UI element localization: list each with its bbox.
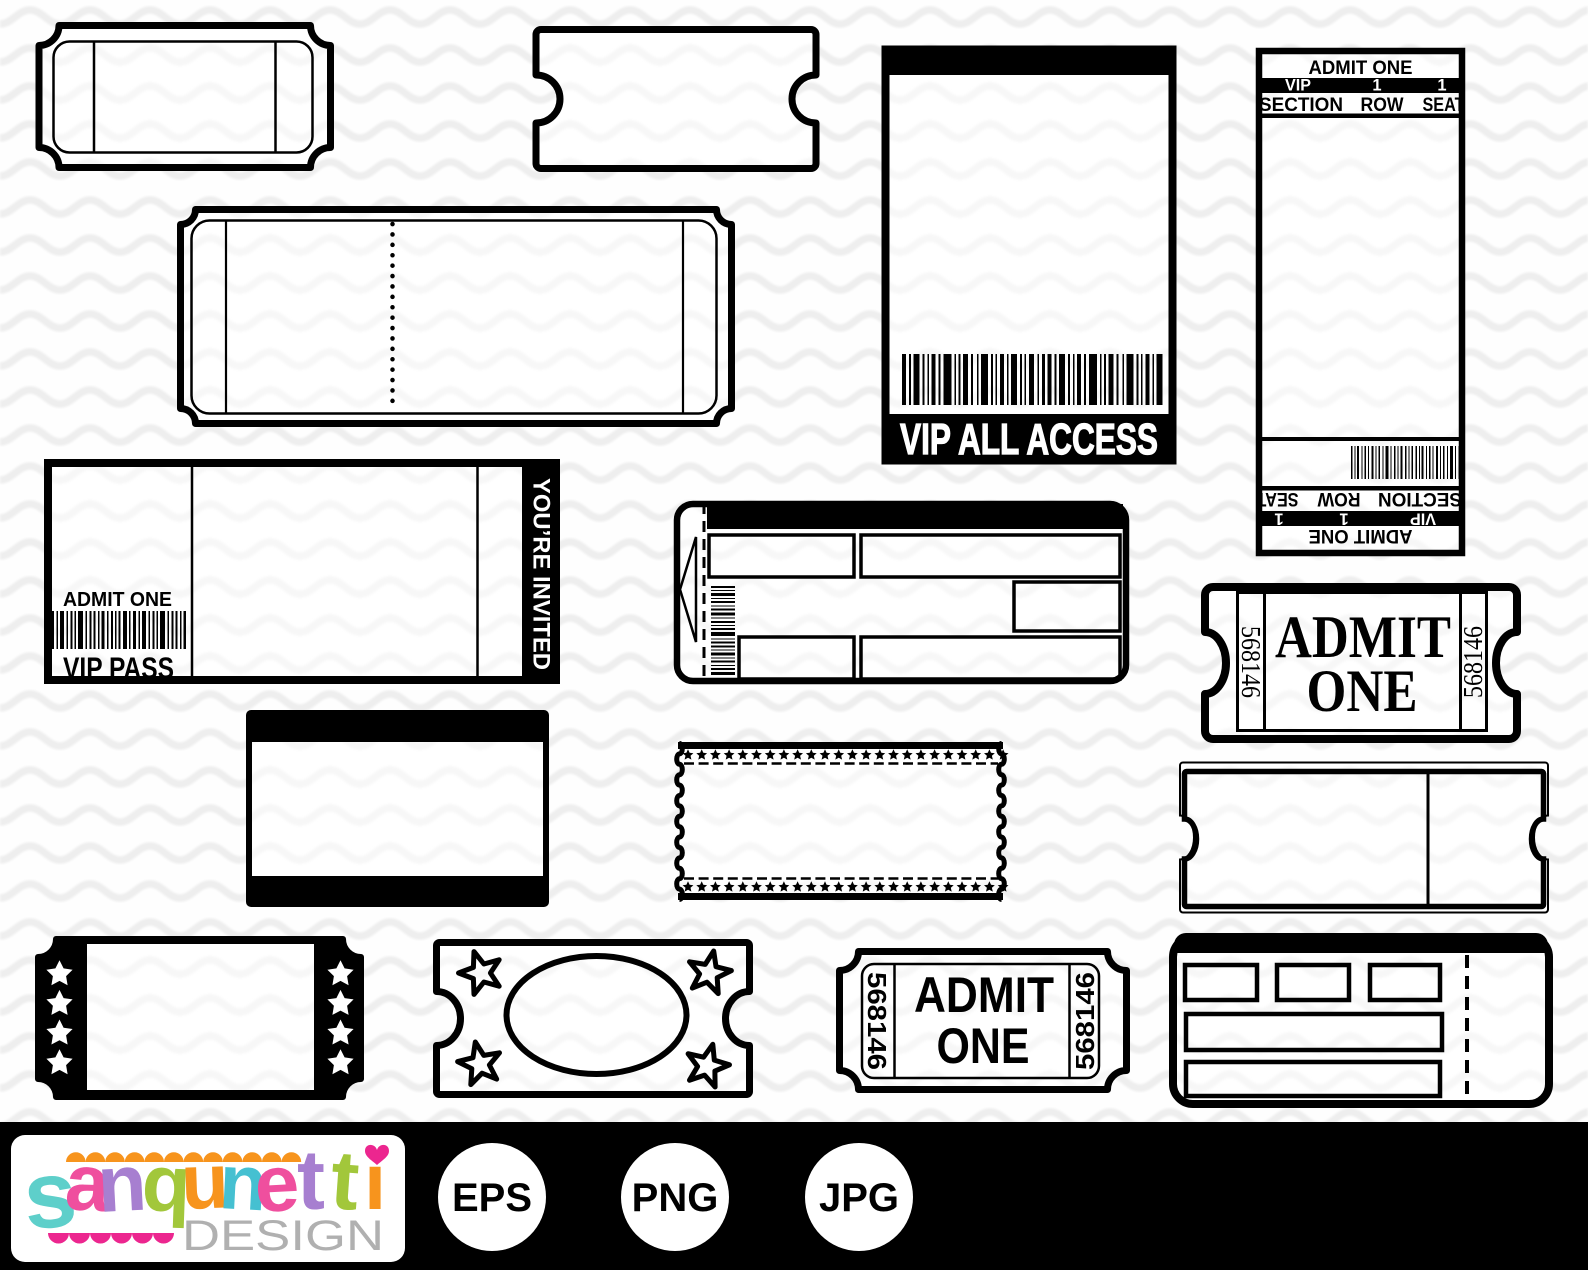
svg-text:ONE: ONE (937, 1018, 1030, 1074)
svg-text:SEAT: SEAT (1423, 94, 1465, 116)
svg-text:VIP: VIP (1285, 77, 1311, 95)
svg-text:1: 1 (1437, 77, 1446, 95)
svg-text:VIP ALL ACCESS: VIP ALL ACCESS (900, 415, 1158, 464)
svg-text:ONE: ONE (1307, 658, 1418, 724)
svg-text:VIP PASS: VIP PASS (63, 651, 174, 686)
svg-text:1: 1 (1372, 77, 1381, 95)
svg-text:SECTION: SECTION (1259, 94, 1343, 116)
svg-text:PNG: PNG (632, 1176, 719, 1220)
svg-text:ADMIT: ADMIT (914, 967, 1054, 1023)
svg-text:YOU’RE INVITED: YOU’RE INVITED (528, 478, 555, 670)
svg-text:ADMIT ONE: ADMIT ONE (63, 589, 172, 611)
svg-text:568146: 568146 (1070, 972, 1100, 1070)
svg-text:ROW: ROW (1361, 94, 1405, 116)
svg-text:568146: 568146 (1458, 626, 1488, 698)
svg-text:EPS: EPS (452, 1176, 532, 1220)
svg-text:JPG: JPG (819, 1176, 899, 1220)
svg-text:568146: 568146 (1236, 626, 1266, 698)
svg-text:DESIGN: DESIGN (182, 1212, 384, 1260)
svg-text:568146: 568146 (862, 972, 892, 1070)
svg-text:ADMIT ONE: ADMIT ONE (1309, 57, 1413, 79)
